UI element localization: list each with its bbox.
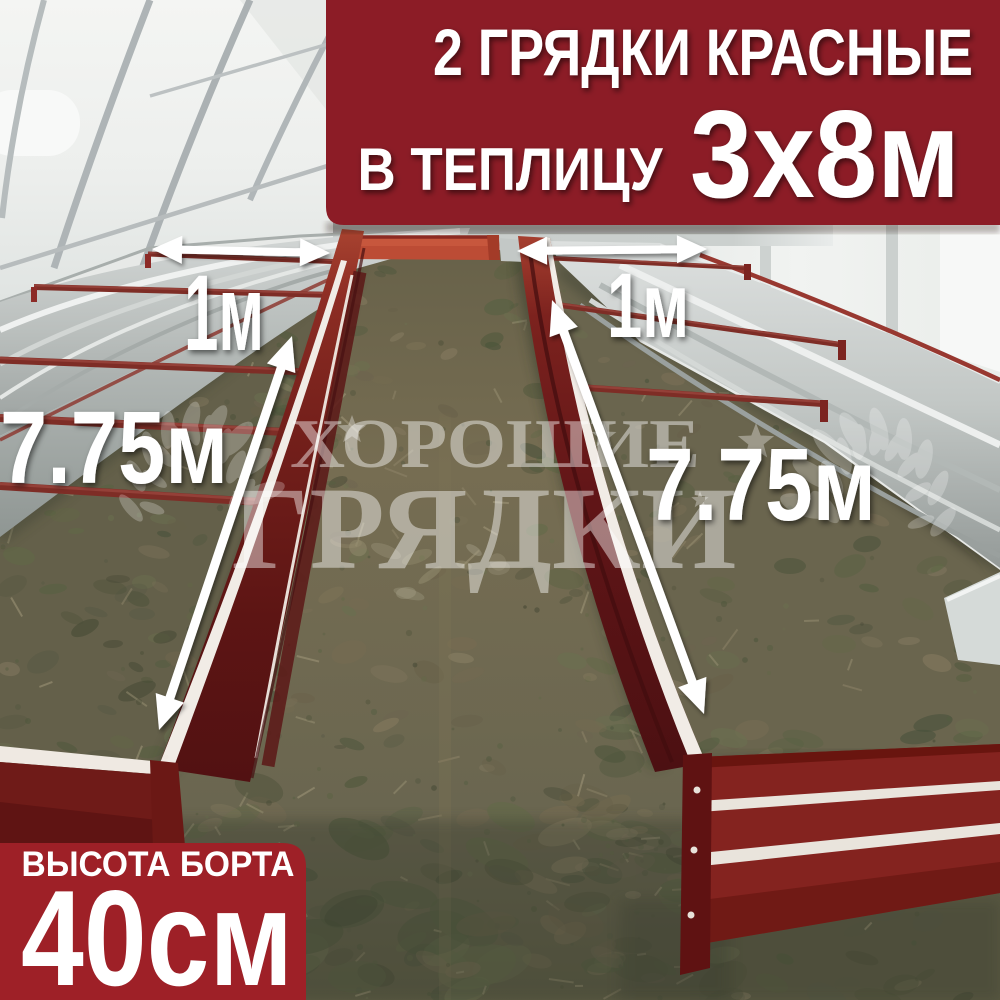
svg-text:7.75м: 7.75м [646,427,876,542]
svg-text:3х8м: 3х8м [690,86,960,224]
svg-text:1м: 1м [607,255,689,357]
svg-text:В ТЕПЛИЦУ: В ТЕПЛИЦУ [358,136,664,203]
svg-text:40см: 40см [21,862,293,1000]
svg-text:7.75м: 7.75м [0,390,228,505]
svg-text:2 ГРЯДКИ КРАСНЫЕ: 2 ГРЯДКИ КРАСНЫЕ [433,15,973,89]
svg-text:1м: 1м [184,252,264,373]
